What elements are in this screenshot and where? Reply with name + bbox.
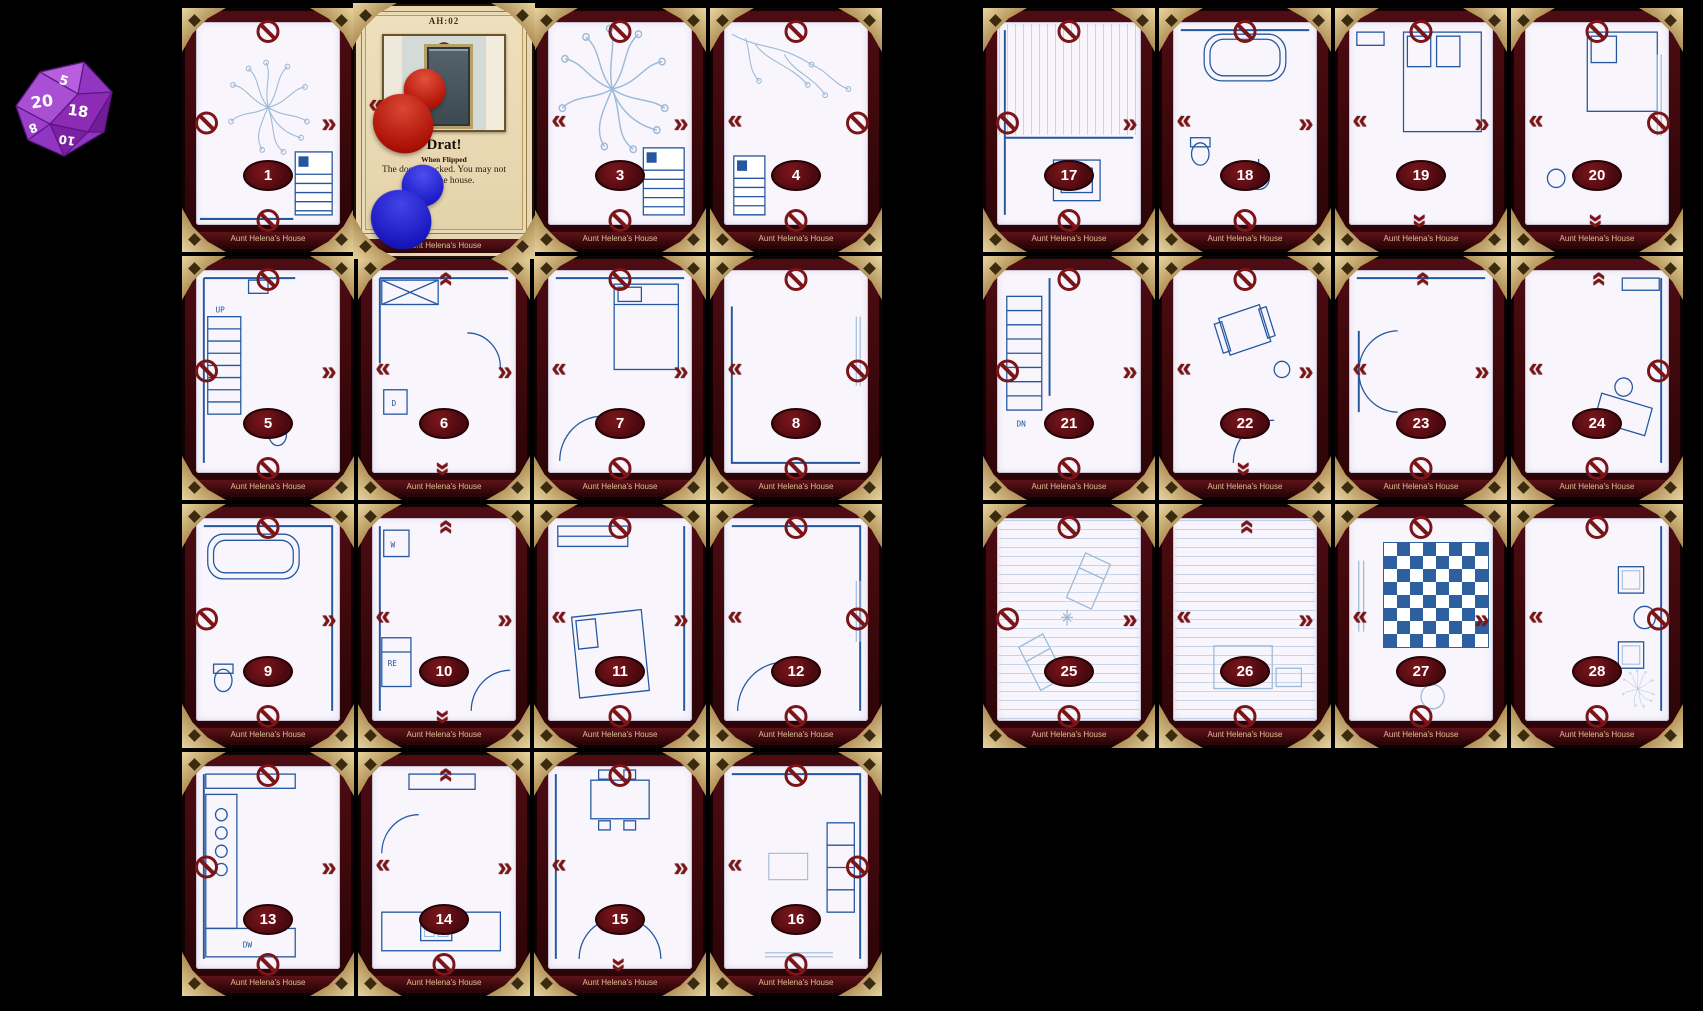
door-chevron-icon: » — [669, 360, 693, 382]
no-entry-icon — [257, 268, 280, 291]
door-chevron-icon: » — [317, 360, 341, 382]
room-card[interactable]: WRE10»»»»Aunt Helena's House — [358, 504, 530, 748]
card-number-badge: 10 — [419, 656, 469, 687]
card-title: Aunt Helena's House — [1345, 232, 1497, 246]
card-number-badge: 18 — [1220, 160, 1270, 191]
room-card[interactable]: 4»Aunt Helena's House — [710, 8, 882, 252]
die-number: 20 — [30, 91, 55, 113]
door-chevron-icon: » — [669, 856, 693, 878]
room-card[interactable]: DN21»Aunt Helena's House — [983, 256, 1155, 500]
no-entry-icon — [1058, 268, 1081, 291]
door-chevron-icon: » — [493, 360, 517, 382]
card-code: AH:02 — [362, 16, 526, 26]
room-blueprint — [1527, 24, 1667, 223]
card-title: Aunt Helena's House — [544, 976, 696, 990]
room-card[interactable]: 14»»»Aunt Helena's House — [358, 752, 530, 996]
door-chevron-icon: » — [317, 608, 341, 630]
door-chevron-icon: » — [1118, 360, 1142, 382]
die-number: 18 — [66, 101, 89, 122]
no-entry-icon — [846, 607, 869, 630]
card-title: Aunt Helena's House — [544, 480, 696, 494]
svg-text:D: D — [392, 399, 397, 408]
room-card[interactable]: 24»»Aunt Helena's House — [1511, 256, 1683, 500]
no-entry-icon — [257, 457, 280, 480]
no-entry-icon — [257, 20, 280, 43]
no-entry-icon — [1234, 209, 1257, 232]
door-chevron-icon: » — [1470, 360, 1494, 382]
door-chevron-icon: » — [1348, 608, 1372, 630]
no-entry-icon — [195, 855, 218, 878]
card-title: Aunt Helena's House — [720, 480, 872, 494]
no-entry-icon — [195, 359, 218, 382]
no-entry-icon — [785, 705, 808, 728]
door-chevron-icon: » — [1524, 608, 1548, 630]
svg-text:W: W — [391, 540, 396, 549]
no-entry-icon — [1647, 111, 1670, 134]
room-card[interactable]: 28»Aunt Helena's House — [1511, 504, 1683, 748]
room-blueprint — [726, 520, 866, 719]
card-title: Aunt Helena's House — [368, 728, 520, 742]
door-chevron-icon: » — [371, 608, 395, 630]
room-card[interactable]: 19»»»Aunt Helena's House — [1335, 8, 1507, 252]
card-number-badge: 28 — [1572, 656, 1622, 687]
room-card[interactable]: 20»»Aunt Helena's House — [1511, 8, 1683, 252]
card-title: Aunt Helena's House — [1345, 480, 1497, 494]
card-number-badge: 14 — [419, 904, 469, 935]
no-entry-icon — [1410, 457, 1433, 480]
room-card[interactable]: 23»»»Aunt Helena's House — [1335, 256, 1507, 500]
no-entry-icon — [785, 268, 808, 291]
door-chevron-icon: » — [547, 112, 571, 134]
room-card[interactable]: 16»Aunt Helena's House — [710, 752, 882, 996]
no-entry-icon — [609, 20, 632, 43]
room-blueprint — [726, 272, 866, 471]
card-number-badge: 1 — [243, 160, 293, 191]
room-card[interactable]: 7»»Aunt Helena's House — [534, 256, 706, 500]
no-entry-icon — [1410, 20, 1433, 43]
door-chevron-icon: » — [1234, 515, 1256, 539]
door-chevron-icon: » — [1172, 360, 1196, 382]
card-title: Aunt Helena's House — [544, 232, 696, 246]
card-number-badge: 23 — [1396, 408, 1446, 439]
no-entry-icon — [1058, 209, 1081, 232]
room-card[interactable]: 22»»»Aunt Helena's House — [1159, 256, 1331, 500]
no-entry-icon — [1586, 457, 1609, 480]
card-title: Aunt Helena's House — [1521, 232, 1673, 246]
no-entry-icon — [1058, 705, 1081, 728]
card-title: Aunt Helena's House — [993, 480, 1145, 494]
door-chevron-icon: » — [669, 112, 693, 134]
door-chevron-icon: » — [433, 267, 455, 291]
door-chevron-icon: » — [1348, 360, 1372, 382]
card-number-badge: 20 — [1572, 160, 1622, 191]
room-card[interactable]: UP5»Aunt Helena's House — [182, 256, 354, 500]
no-entry-icon — [785, 516, 808, 539]
svg-text:UP: UP — [216, 305, 226, 314]
card-title: Aunt Helena's House — [368, 480, 520, 494]
no-entry-icon — [195, 607, 218, 630]
card-number-badge: 8 — [771, 408, 821, 439]
no-entry-icon — [1234, 268, 1257, 291]
room-card[interactable]: 12»Aunt Helena's House — [710, 504, 882, 748]
no-entry-icon — [846, 111, 869, 134]
card-title: Aunt Helena's House — [993, 232, 1145, 246]
no-entry-icon — [257, 764, 280, 787]
card-number-badge: 9 — [243, 656, 293, 687]
room-blueprint — [1527, 272, 1667, 471]
event-card-ah02[interactable]: AH:02 » Drat! When Flipped The door is l… — [354, 4, 534, 258]
no-entry-icon — [1647, 607, 1670, 630]
no-entry-icon — [1586, 705, 1609, 728]
door-chevron-icon: » — [1294, 608, 1318, 630]
door-chevron-icon: » — [1172, 608, 1196, 630]
room-card[interactable]: 8»Aunt Helena's House — [710, 256, 882, 500]
no-entry-icon — [1586, 20, 1609, 43]
door-chevron-icon: » — [433, 763, 455, 787]
room-blueprint — [1527, 520, 1667, 719]
no-entry-icon — [609, 268, 632, 291]
door-chevron-icon: » — [371, 360, 395, 382]
door-chevron-icon: » — [1410, 267, 1432, 291]
door-chevron-icon: » — [723, 112, 747, 134]
card-title: Aunt Helena's House — [720, 728, 872, 742]
no-entry-icon — [846, 855, 869, 878]
no-entry-icon — [609, 764, 632, 787]
card-title: Aunt Helena's House — [1169, 728, 1321, 742]
no-entry-icon — [195, 111, 218, 134]
no-entry-icon — [785, 20, 808, 43]
no-entry-icon — [785, 764, 808, 787]
door-chevron-icon: » — [1586, 267, 1608, 291]
door-chevron-icon: » — [1348, 112, 1372, 134]
room-card[interactable]: 26»»»Aunt Helena's House — [1159, 504, 1331, 748]
no-entry-icon — [846, 359, 869, 382]
card-number-badge: 21 — [1044, 408, 1094, 439]
card-number-badge: 5 — [243, 408, 293, 439]
room-card[interactable]: 11»»Aunt Helena's House — [534, 504, 706, 748]
door-chevron-icon: » — [547, 856, 571, 878]
no-entry-icon — [1234, 705, 1257, 728]
room-card[interactable]: 27»»Aunt Helena's House — [1335, 504, 1507, 748]
no-entry-icon — [609, 705, 632, 728]
door-chevron-icon: » — [547, 608, 571, 630]
card-number-badge: 26 — [1220, 656, 1270, 687]
door-chevron-icon: » — [1524, 360, 1548, 382]
card-number-badge: 4 — [771, 160, 821, 191]
room-card[interactable]: 15»»»Aunt Helena's House — [534, 752, 706, 996]
card-title: Aunt Helena's House — [1521, 480, 1673, 494]
no-entry-icon — [1234, 20, 1257, 43]
card-title: Aunt Helena's House — [544, 728, 696, 742]
door-chevron-icon: » — [1234, 457, 1256, 481]
no-entry-icon — [609, 457, 632, 480]
card-title: Aunt Helena's House — [192, 976, 344, 990]
room-card[interactable]: 3»»Aunt Helena's House — [534, 8, 706, 252]
card-number-badge: 24 — [1572, 408, 1622, 439]
no-entry-icon — [1410, 516, 1433, 539]
door-chevron-icon: » — [433, 705, 455, 729]
no-entry-icon — [1058, 457, 1081, 480]
no-entry-icon — [1410, 705, 1433, 728]
no-entry-icon — [1586, 516, 1609, 539]
card-number-badge: 11 — [595, 656, 645, 687]
no-entry-icon — [785, 209, 808, 232]
no-entry-icon — [257, 705, 280, 728]
door-chevron-icon: » — [317, 856, 341, 878]
no-entry-icon — [785, 457, 808, 480]
no-entry-icon — [609, 516, 632, 539]
room-card[interactable]: DW13»Aunt Helena's House — [182, 752, 354, 996]
room-card[interactable]: 9»Aunt Helena's House — [182, 504, 354, 748]
card-title: Aunt Helena's House — [1521, 728, 1673, 742]
no-entry-icon — [1058, 516, 1081, 539]
room-card[interactable]: 17»Aunt Helena's House — [983, 8, 1155, 252]
card-title: Aunt Helena's House — [1345, 728, 1497, 742]
svg-text:DN: DN — [1017, 419, 1027, 428]
door-chevron-icon: » — [493, 608, 517, 630]
card-title: Aunt Helena's House — [192, 480, 344, 494]
no-entry-icon — [257, 953, 280, 976]
card-number-badge: 13 — [243, 904, 293, 935]
no-entry-icon — [609, 209, 632, 232]
door-chevron-icon: » — [1470, 608, 1494, 630]
door-chevron-icon: » — [723, 608, 747, 630]
door-chevron-icon: » — [1524, 112, 1548, 134]
room-blueprint — [726, 768, 866, 967]
card-number-badge: 19 — [1396, 160, 1446, 191]
door-chevron-icon: » — [493, 856, 517, 878]
no-entry-icon — [433, 953, 456, 976]
card-title: Aunt Helena's House — [1169, 232, 1321, 246]
door-chevron-icon: » — [433, 457, 455, 481]
door-chevron-icon: » — [317, 112, 341, 134]
card-number-badge: 16 — [771, 904, 821, 935]
card-number-badge: 7 — [595, 408, 645, 439]
door-chevron-icon: » — [1294, 112, 1318, 134]
door-chevron-icon: » — [723, 856, 747, 878]
door-chevron-icon: » — [371, 856, 395, 878]
door-chevron-icon: » — [669, 608, 693, 630]
card-number-badge: 3 — [595, 160, 645, 191]
no-entry-icon — [996, 111, 1019, 134]
no-entry-icon — [1647, 359, 1670, 382]
no-entry-icon — [996, 359, 1019, 382]
room-card[interactable]: D6»»»»Aunt Helena's House — [358, 256, 530, 500]
no-entry-icon — [785, 953, 808, 976]
game-table: 20 5 18 8 10 1»Aunt Helena's House3»»Aun… — [0, 0, 1703, 1011]
door-chevron-icon: » — [1410, 209, 1432, 233]
door-chevron-icon: » — [1172, 112, 1196, 134]
card-title: Aunt Helena's House — [192, 232, 344, 246]
room-card[interactable]: 18»»Aunt Helena's House — [1159, 8, 1331, 252]
card-title: Aunt Helena's House — [1169, 480, 1321, 494]
door-chevron-icon: » — [609, 953, 631, 977]
event-trigger: When Flipped — [362, 155, 526, 164]
room-blueprint — [726, 24, 866, 223]
card-number-badge: 25 — [1044, 656, 1094, 687]
no-entry-icon — [996, 607, 1019, 630]
no-entry-icon — [1058, 20, 1081, 43]
door-chevron-icon: » — [433, 515, 455, 539]
door-chevron-icon: » — [1294, 360, 1318, 382]
svg-text:DW: DW — [243, 941, 253, 950]
room-card[interactable]: 25»Aunt Helena's House — [983, 504, 1155, 748]
room-card[interactable]: 1»Aunt Helena's House — [182, 8, 354, 252]
card-number-badge: 6 — [419, 408, 469, 439]
svg-text:RE: RE — [388, 659, 398, 668]
card-title: Aunt Helena's House — [192, 728, 344, 742]
door-chevron-icon: » — [1586, 209, 1608, 233]
door-chevron-icon: » — [1470, 112, 1494, 134]
card-title: Aunt Helena's House — [720, 976, 872, 990]
d20-die[interactable]: 20 5 18 8 10 — [6, 54, 122, 158]
die-number: 10 — [58, 132, 76, 148]
card-number-badge: 12 — [771, 656, 821, 687]
card-number-badge: 22 — [1220, 408, 1270, 439]
card-number-badge: 17 — [1044, 160, 1094, 191]
door-chevron-icon: » — [547, 360, 571, 382]
card-title: Aunt Helena's House — [368, 976, 520, 990]
no-entry-icon — [257, 516, 280, 539]
door-chevron-icon: » — [1118, 112, 1142, 134]
door-chevron-icon: » — [723, 360, 747, 382]
door-chevron-icon: » — [1118, 608, 1142, 630]
card-title: Aunt Helena's House — [993, 728, 1145, 742]
card-number-badge: 15 — [595, 904, 645, 935]
no-entry-icon — [257, 209, 280, 232]
card-title: Aunt Helena's House — [720, 232, 872, 246]
card-number-badge: 27 — [1396, 656, 1446, 687]
